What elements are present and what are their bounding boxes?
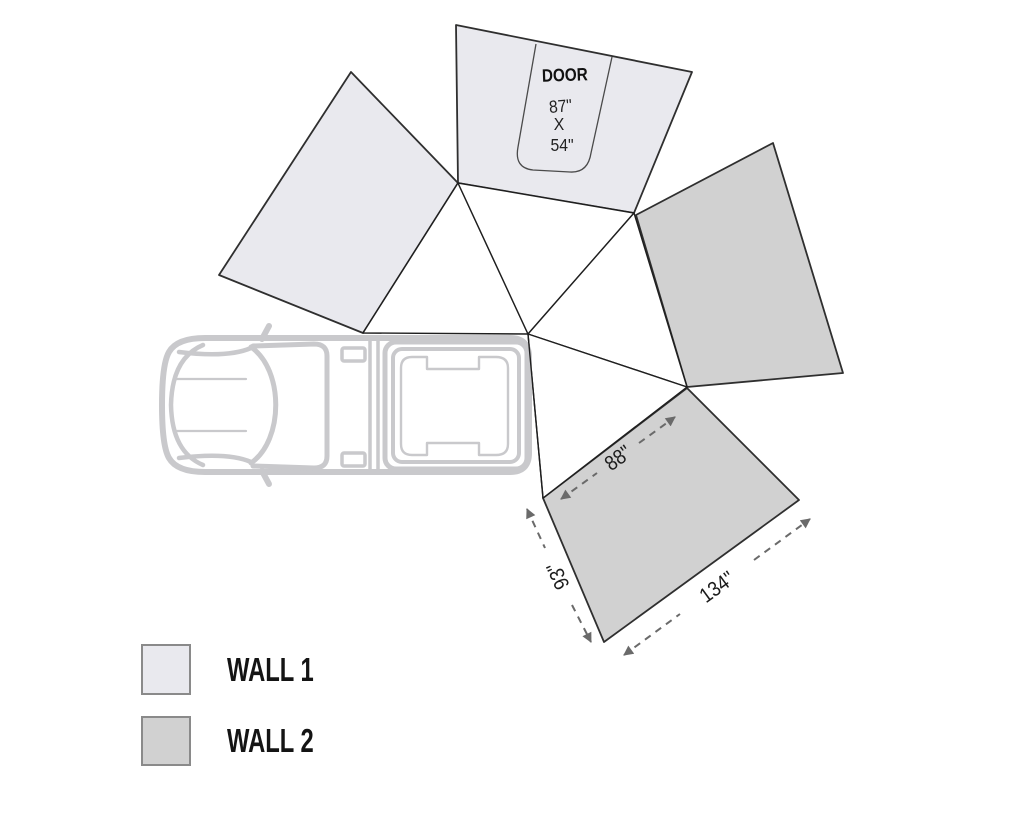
legend-item-wall2: WALL 2 [141, 716, 347, 766]
door-height-text: 54" [550, 135, 573, 155]
vehicle-windshield [251, 347, 276, 463]
vehicle-mount-top [342, 348, 365, 361]
dimension-label-134: 134" [695, 567, 739, 608]
wall1-swatch [141, 644, 191, 695]
wall2-swatch [141, 716, 191, 766]
vehicle-mount-bottom [342, 453, 365, 466]
wall2-swatch-rect [142, 717, 190, 765]
legend-item-wall1: WALL 1 [141, 644, 347, 695]
vehicle-hood-crease-top [179, 348, 251, 354]
awning-diagram-page: DOOR 87" X 54" [0, 0, 1024, 819]
vehicle-illustration [162, 326, 529, 484]
wall2-label: WALL 2 [227, 722, 314, 760]
door-label: DOOR [542, 64, 589, 86]
wall1-door-panel [456, 25, 692, 213]
wall1-label: WALL 1 [227, 651, 314, 689]
vehicle-bed-inner [393, 349, 519, 462]
vehicle-bed-floor-contour [401, 357, 508, 455]
vehicle-front-bumper [171, 345, 203, 465]
awning-layout-diagram: DOOR 87" X 54" [0, 0, 1024, 819]
door-x-text: X [554, 114, 564, 134]
vehicle-hood-crease-bottom [179, 456, 251, 462]
wall1-swatch-rect [142, 645, 190, 694]
